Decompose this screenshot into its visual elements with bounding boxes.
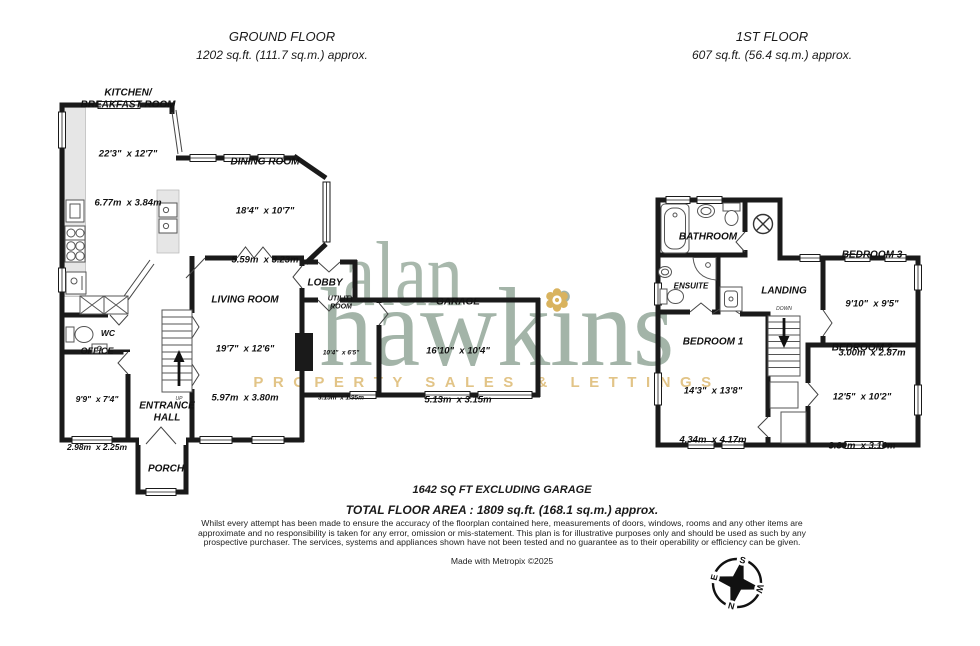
- floorplan-page: alan hawkins PROPERTY SALES & LETTINGS: [0, 0, 980, 646]
- credit-line: Made with Metropix ©2025: [451, 556, 553, 566]
- compass-west: W: [754, 583, 766, 594]
- first-floor-title: 1ST FLOOR: [692, 28, 852, 47]
- kitchen-sink-icon: [66, 272, 86, 294]
- ground-floor-area: 1202 sq.ft. (111.7 sq.m.) approx.: [196, 47, 368, 64]
- room-label-office: OFFICE 9'9" x 7'4" 2.98m x 2.25m: [67, 308, 127, 490]
- room-label-porch: PORCH: [148, 425, 184, 512]
- chimney-breast: [295, 333, 313, 371]
- first-floor-header: 1ST FLOOR 607 sq.ft. (56.4 sq.m.) approx…: [692, 28, 852, 64]
- first-floor-area: 607 sq.ft. (56.4 sq.m.) approx.: [692, 47, 852, 64]
- compass-rose: S W N E: [701, 547, 774, 620]
- room-label-garage: GARAGE 16'10" x 10'4" 5.13m x 3.15m: [424, 258, 491, 443]
- room-label-bedroom2: BEDROOM 2 12'5" x 10'2" 3.80m x 3.10m: [828, 304, 895, 489]
- total-floor-area: TOTAL FLOOR AREA : 1809 sq.ft. (168.1 sq…: [346, 503, 659, 517]
- disclaimer: Whilst every attempt has been made to en…: [182, 519, 822, 548]
- ground-floor-title: GROUND FLOOR: [196, 28, 368, 47]
- room-label-kitchen: KITCHEN/ BREAKFAST ROOM 22'3" x 12'7" 6.…: [81, 50, 176, 247]
- room-label-landing: LANDING: [761, 247, 807, 334]
- ground-floor-header: GROUND FLOOR 1202 sq.ft. (111.7 sq.m.) a…: [196, 28, 368, 64]
- room-label-utility: UTILITY ROOM 10'4" x 6'5" 3.15m x 1.95m: [318, 258, 364, 441]
- room-label-bedroom1: BEDROOM 1 14'3" x 13'8" 4.34m x 4.17m: [679, 298, 746, 483]
- cupboard: [770, 382, 806, 443]
- ensuite-sink-icon: [659, 267, 672, 278]
- garage-note: 1642 SQ FT EXCLUDING GARAGE: [412, 484, 591, 496]
- room-label-living: LIVING ROOM 19'7" x 12'6" 5.97m x 3.80m: [211, 256, 278, 441]
- water-tank-icon: [754, 215, 773, 234]
